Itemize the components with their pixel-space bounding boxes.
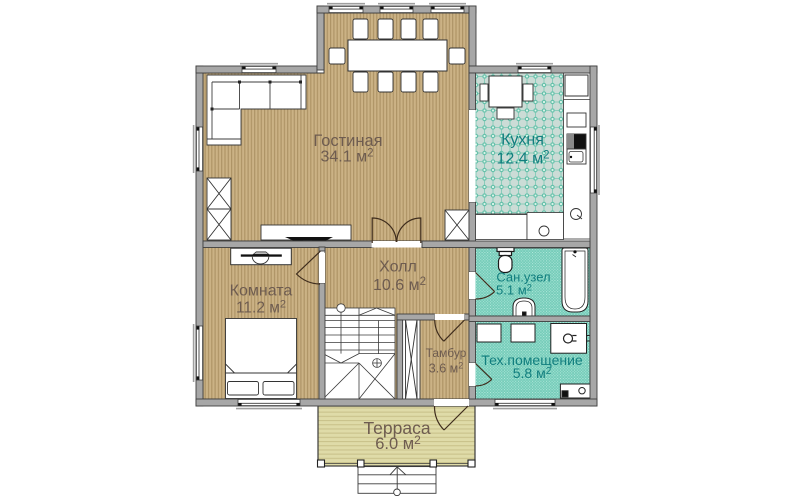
svg-text:12.4 м2: 12.4 м2 <box>497 149 550 167</box>
svg-text:34.1 м2: 34.1 м2 <box>321 148 374 166</box>
svg-text:11.2 м2: 11.2 м2 <box>236 299 286 317</box>
svg-text:5.1 м2: 5.1 м2 <box>496 283 532 298</box>
svg-text:3.6 м2: 3.6 м2 <box>429 361 463 376</box>
svg-text:10.6 м2: 10.6 м2 <box>373 276 426 294</box>
svg-text:Холл: Холл <box>379 259 417 276</box>
svg-text:Комната: Комната <box>230 283 293 300</box>
svg-text:Тамбур: Тамбур <box>426 346 467 360</box>
svg-text:Кухня: Кухня <box>501 132 544 149</box>
